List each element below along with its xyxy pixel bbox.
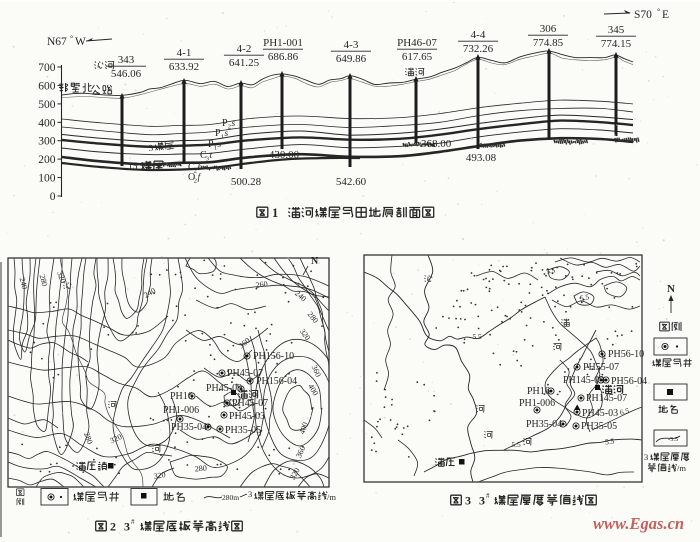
svg-text:686.86: 686.86	[268, 51, 299, 63]
svg-text:s: s	[232, 119, 236, 129]
svg-text:t: t	[210, 151, 213, 161]
svg-text:3: 3	[465, 494, 471, 508]
svg-text:500: 500	[38, 99, 56, 111]
svg-text:0: 0	[50, 191, 56, 203]
svg-text:617.65: 617.65	[402, 51, 433, 63]
svg-text:542.60: 542.60	[336, 176, 367, 188]
svg-text:343: 343	[118, 54, 135, 66]
svg-text:PH45-03: PH45-03	[582, 408, 618, 419]
svg-text:5.5: 5.5	[604, 436, 615, 446]
svg-text:774.85: 774.85	[533, 37, 564, 49]
svg-text:100: 100	[38, 173, 56, 185]
svg-text:PH35-04: PH35-04	[526, 419, 562, 430]
svg-text:4-3: 4-3	[344, 39, 359, 51]
svg-text:280: 280	[194, 464, 207, 474]
svg-text:PH45-07: PH45-07	[232, 398, 268, 409]
svg-text:PH45-03: PH45-03	[229, 411, 265, 422]
svg-text:W: W	[75, 36, 86, 48]
svg-text:PH45-09: PH45-09	[206, 383, 242, 394]
svg-text:4-4: 4-4	[471, 29, 486, 41]
svg-text:4-1: 4-1	[177, 47, 192, 59]
svg-text:5.5: 5.5	[579, 292, 590, 303]
svg-text:600: 600	[38, 80, 56, 92]
svg-text:732.26: 732.26	[463, 43, 494, 55]
svg-text:°: °	[70, 34, 73, 43]
svg-text:PH35-05: PH35-05	[581, 421, 617, 432]
svg-text:PH55-07: PH55-07	[583, 362, 619, 373]
svg-text:3: 3	[479, 494, 485, 508]
svg-text:PH16: PH16	[527, 386, 550, 397]
svg-text:www.Egas.cn: www.Egas.cn	[593, 514, 684, 533]
svg-text:PH35-04: PH35-04	[171, 422, 207, 433]
svg-text:633.92: 633.92	[169, 61, 199, 73]
svg-text:PH1-001: PH1-001	[263, 37, 303, 49]
svg-text:3: 3	[644, 452, 648, 462]
svg-text:/m: /m	[677, 463, 686, 473]
svg-text:15: 15	[128, 162, 138, 172]
svg-text:S70: S70	[634, 9, 652, 21]
svg-text:493.08: 493.08	[466, 152, 497, 164]
svg-text:N67: N67	[47, 36, 67, 48]
svg-text:400: 400	[38, 117, 56, 129]
svg-text:PH145-07: PH145-07	[586, 393, 627, 404]
svg-text:774.15: 774.15	[601, 38, 632, 50]
svg-text:PH35-05: PH35-05	[225, 425, 261, 436]
svg-text:4-2: 4-2	[237, 43, 252, 55]
svg-text:2: 2	[110, 520, 116, 534]
svg-text:PH16: PH16	[170, 391, 193, 402]
svg-text:430.00: 430.00	[269, 149, 300, 161]
svg-text:700: 700	[38, 62, 56, 74]
svg-text:306: 306	[540, 23, 557, 35]
svg-text:PH56-04: PH56-04	[611, 376, 647, 387]
svg-text:#: #	[131, 518, 135, 526]
svg-text:641.25: 641.25	[229, 57, 260, 69]
svg-text:N: N	[311, 256, 319, 267]
svg-text:1: 1	[272, 206, 278, 220]
svg-text:°: °	[657, 7, 660, 16]
svg-text:s: s	[218, 140, 222, 150]
svg-text:200: 200	[38, 154, 56, 166]
svg-text:300: 300	[38, 136, 56, 148]
svg-text:PH156-10: PH156-10	[253, 351, 294, 362]
svg-text:PH56-10: PH56-10	[608, 349, 644, 360]
svg-text:#: #	[486, 492, 490, 500]
svg-text:500.28: 500.28	[231, 176, 262, 188]
svg-text:345: 345	[608, 24, 625, 36]
svg-text:b: b	[198, 163, 203, 173]
svg-text:546.06: 546.06	[111, 68, 142, 80]
svg-text:649.86: 649.86	[336, 53, 367, 65]
svg-text:PH46-07: PH46-07	[397, 37, 437, 49]
svg-text:-5.5: -5.5	[668, 436, 678, 443]
svg-text:3: 3	[248, 489, 252, 499]
svg-text:280m: 280m	[222, 493, 239, 502]
svg-text:5.5: 5.5	[472, 332, 482, 341]
svg-text:N: N	[667, 283, 675, 295]
svg-text:368.00: 368.00	[421, 138, 452, 150]
svg-text:s: s	[225, 129, 229, 139]
svg-text:E: E	[662, 9, 669, 21]
svg-text:PH1-006: PH1-006	[519, 398, 555, 409]
svg-text:3: 3	[124, 520, 130, 534]
svg-text:/m: /m	[327, 492, 336, 502]
svg-text:PH1-006: PH1-006	[163, 405, 199, 416]
svg-text:PH156-04: PH156-04	[256, 376, 297, 387]
svg-text:5.5: 5.5	[511, 440, 521, 449]
